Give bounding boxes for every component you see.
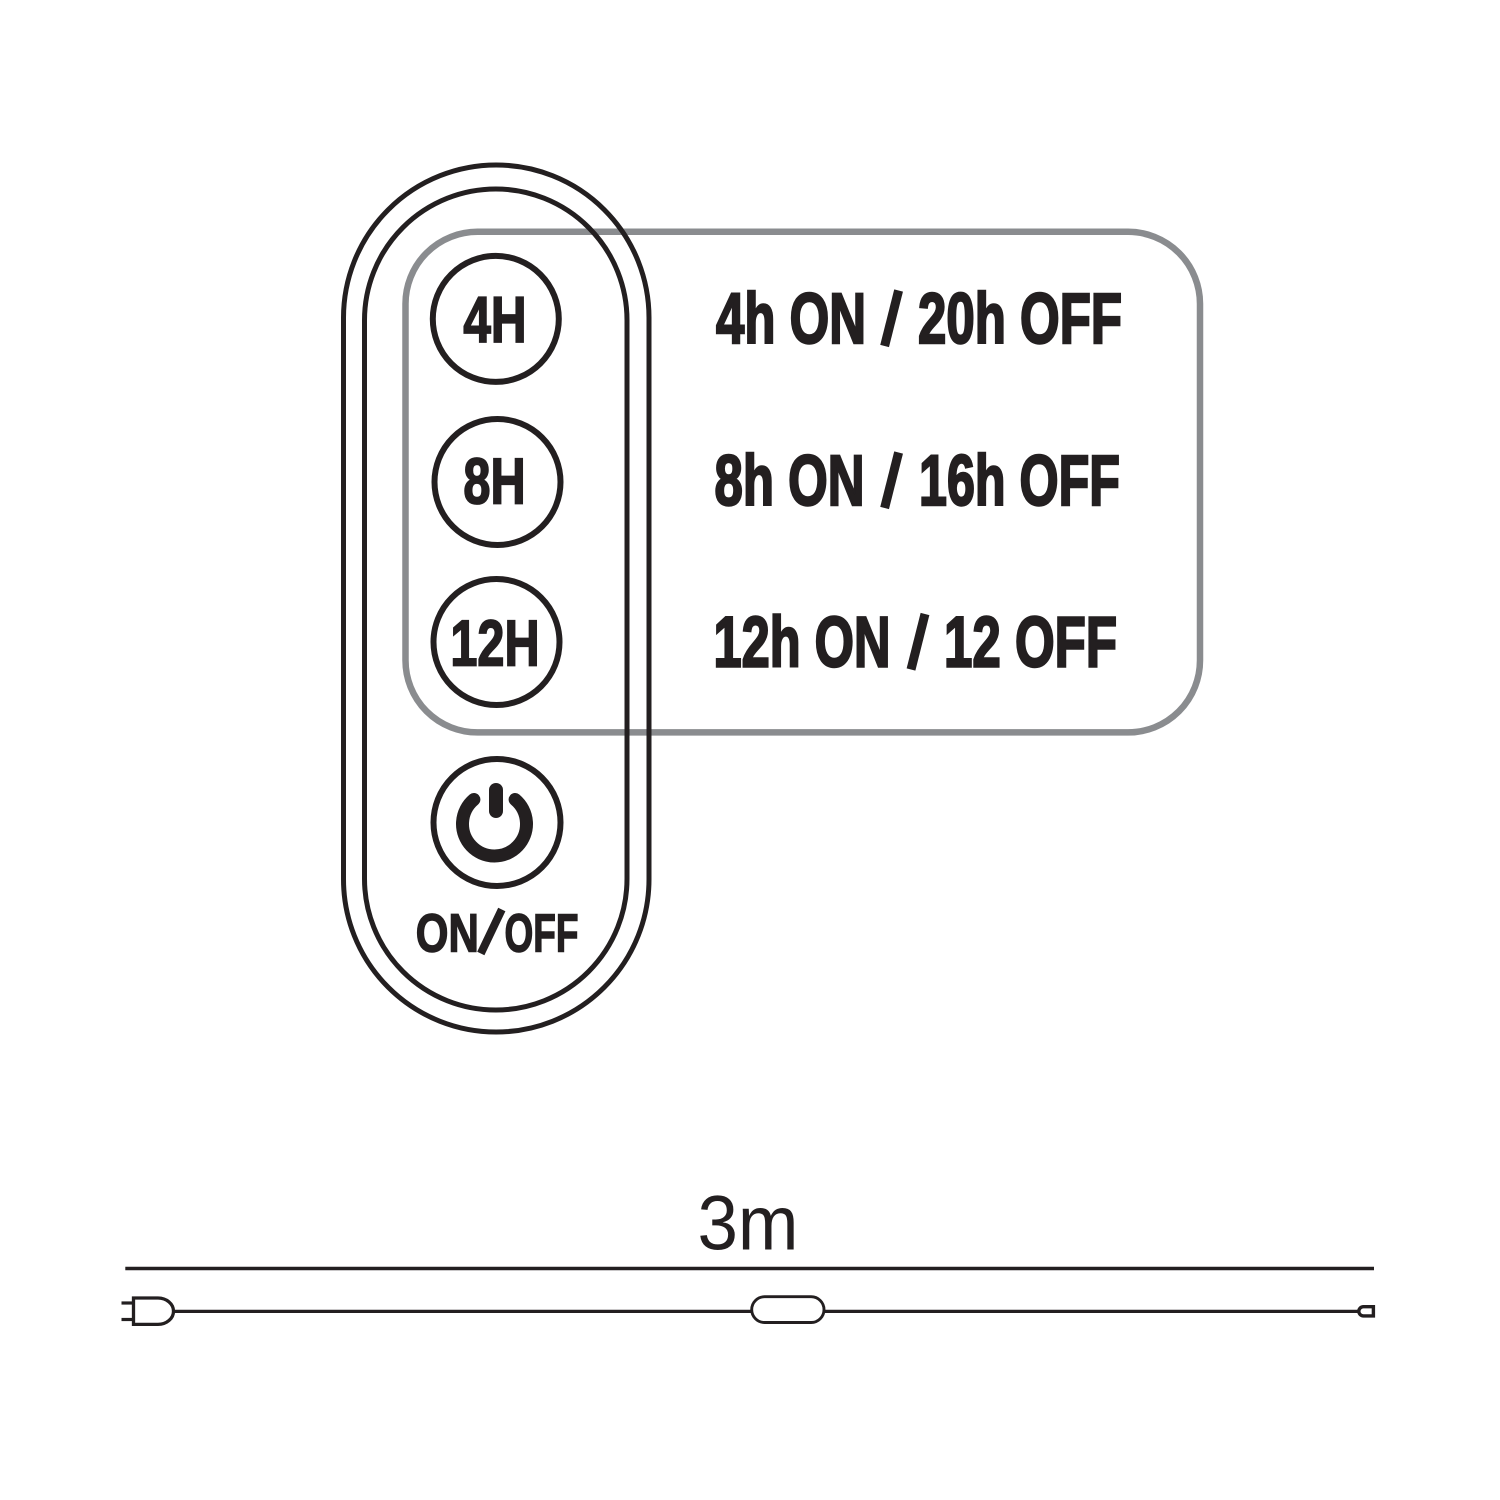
svg-text:12H: 12H	[450, 607, 539, 680]
svg-text:4h ON: 4h ON	[716, 280, 866, 359]
svg-text:16h OFF: 16h OFF	[919, 442, 1120, 521]
svg-text:8h ON: 8h ON	[715, 442, 865, 521]
svg-text:12h ON: 12h ON	[714, 603, 891, 682]
svg-text:12 OFF: 12 OFF	[944, 603, 1117, 682]
svg-text:20h OFF: 20h OFF	[918, 280, 1122, 359]
svg-text:OFF: OFF	[505, 904, 579, 964]
svg-text:4H: 4H	[463, 283, 526, 356]
svg-text:ON: ON	[416, 904, 479, 964]
svg-text:8H: 8H	[463, 444, 525, 517]
svg-text:3m: 3m	[698, 1181, 799, 1267]
